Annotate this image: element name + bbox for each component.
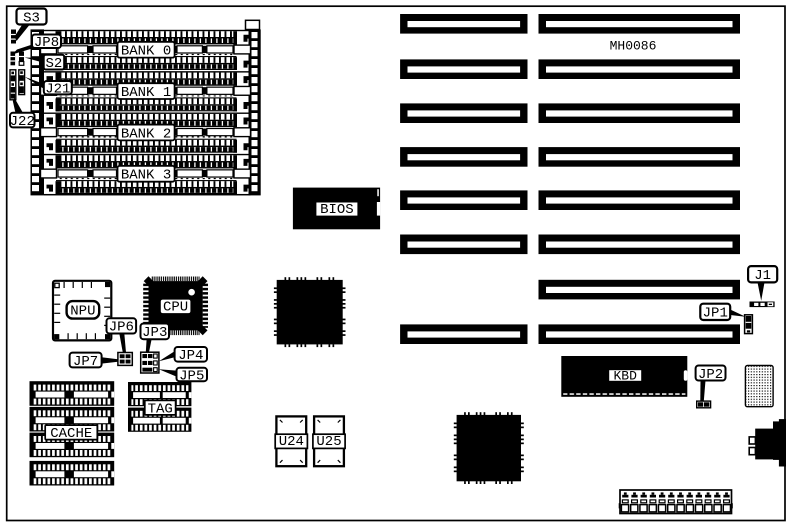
svg-text:JP5: JP5: [179, 368, 204, 384]
svg-text:JP7: JP7: [73, 354, 98, 370]
svg-text:JP2: JP2: [698, 367, 723, 383]
svg-text:JP3: JP3: [142, 325, 167, 341]
svg-text:NPU: NPU: [70, 304, 95, 320]
svg-text:BANK 2: BANK 2: [121, 126, 171, 142]
svg-text:J22: J22: [10, 114, 35, 130]
svg-text:JP6: JP6: [109, 320, 134, 336]
svg-text:U25: U25: [316, 434, 341, 450]
svg-text:BIOS: BIOS: [320, 202, 354, 218]
svg-text:KBD: KBD: [613, 368, 637, 383]
svg-text:J21: J21: [45, 82, 70, 98]
svg-text:BANK 1: BANK 1: [121, 85, 171, 101]
svg-text:JP1: JP1: [703, 306, 728, 322]
svg-text:S3: S3: [23, 10, 40, 26]
svg-text:U24: U24: [279, 434, 304, 450]
svg-text:CACHE: CACHE: [50, 426, 92, 442]
svg-text:TAG: TAG: [148, 401, 173, 417]
svg-text:S2: S2: [46, 56, 63, 72]
svg-text:JP8: JP8: [34, 35, 59, 51]
svg-text:JP4: JP4: [178, 348, 203, 364]
svg-text:BANK 0: BANK 0: [121, 44, 171, 60]
svg-text:MH0086: MH0086: [610, 39, 657, 54]
svg-text:J1: J1: [754, 268, 771, 284]
svg-text:BANK 3: BANK 3: [121, 168, 171, 184]
svg-text:CPU: CPU: [163, 299, 188, 315]
